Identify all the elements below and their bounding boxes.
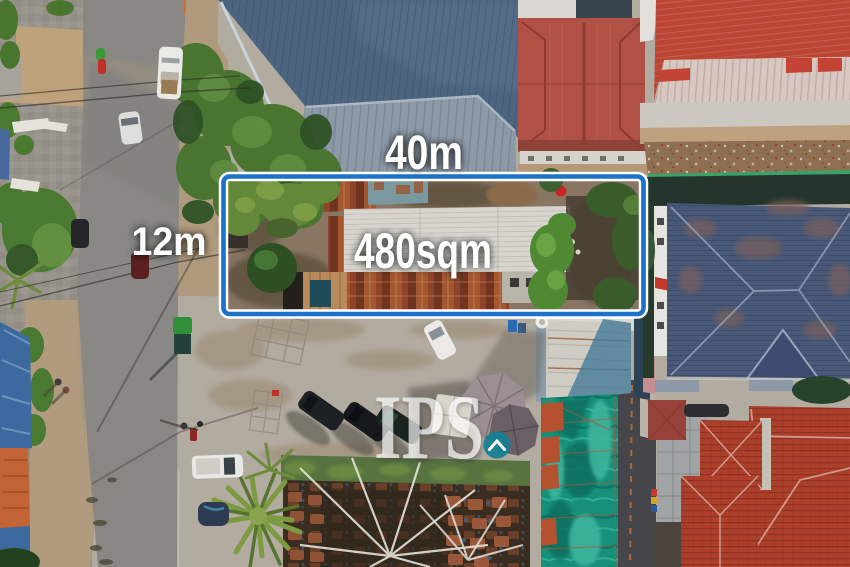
svg-text:12m: 12m (132, 220, 207, 264)
svg-text:40m: 40m (385, 127, 463, 180)
svg-text:IPS: IPS (374, 376, 484, 478)
svg-text:480sqm: 480sqm (354, 223, 492, 279)
